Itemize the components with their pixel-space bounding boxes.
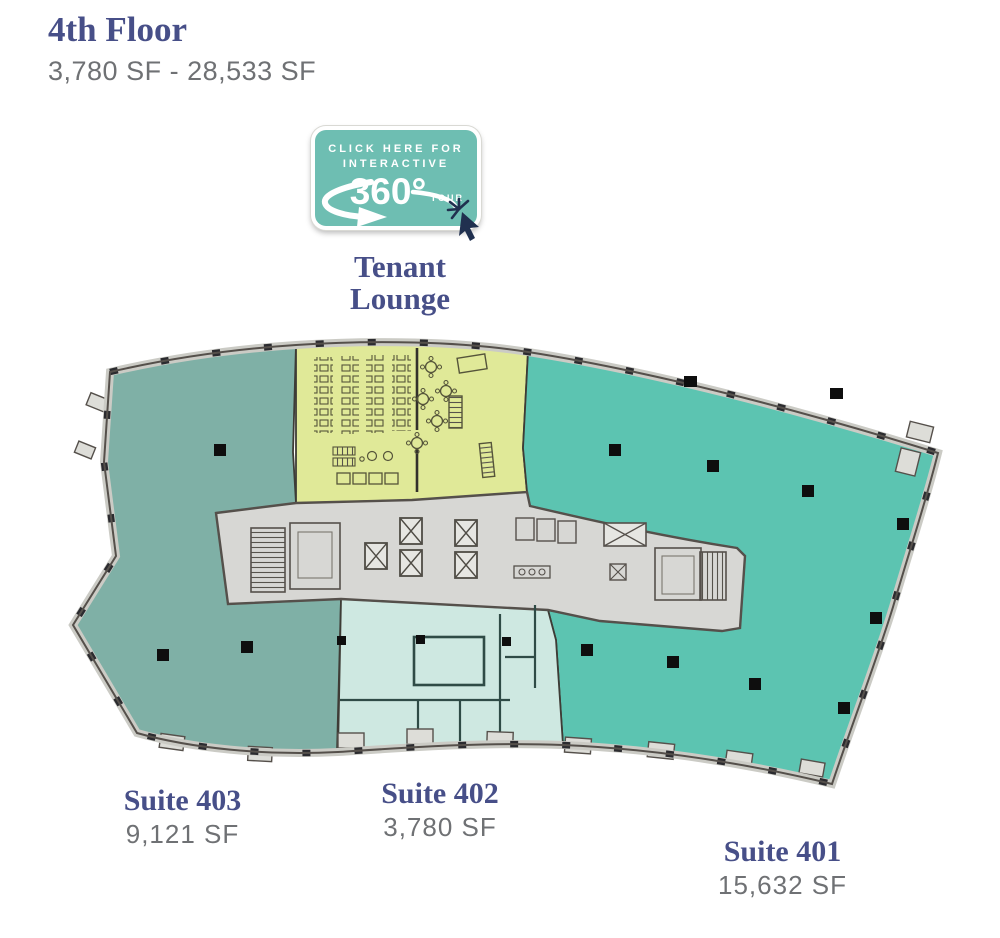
suite-402-label: Suite 402 3,780 SF	[330, 777, 550, 843]
suite-name: Suite 401	[660, 835, 905, 868]
badge-click-here-text: CLICK HERE FOR	[315, 130, 477, 157]
suite-area: 15,632 SF	[660, 870, 905, 901]
stair-icon	[700, 552, 726, 600]
suite-403-label: Suite 403 9,121 SF	[60, 784, 305, 850]
badge-inner: CLICK HERE FOR INTERACTIVE 360° TOUR	[315, 130, 477, 226]
suite-name: Suite 403	[60, 784, 305, 817]
elevator-icon	[400, 518, 422, 544]
stair-icon	[251, 528, 285, 592]
elevator-icon	[365, 543, 387, 569]
cursor-click-icon	[443, 196, 487, 242]
badge-360-text: 360°	[315, 173, 461, 211]
floor-plan-page: 4th Floor 3,780 SF - 28,533 SF	[0, 0, 1000, 938]
elevator-icon	[400, 550, 422, 576]
elevator-icon	[455, 520, 477, 546]
tenant-lounge-line1: Tenant	[300, 251, 500, 283]
interactive-360-tour-badge[interactable]: CLICK HERE FOR INTERACTIVE 360° TOUR	[311, 126, 481, 230]
tenant-lounge-label: Tenant Lounge	[300, 251, 500, 315]
suite-402-region	[338, 599, 563, 752]
suite-name: Suite 402	[330, 777, 550, 810]
suite-area: 9,121 SF	[60, 819, 305, 850]
suite-401-label: Suite 401 15,632 SF	[660, 835, 905, 901]
suite-area: 3,780 SF	[330, 812, 550, 843]
elevator-icon	[455, 552, 477, 578]
tenant-lounge-line2: Lounge	[300, 283, 500, 315]
mech-room-icon	[604, 523, 646, 546]
